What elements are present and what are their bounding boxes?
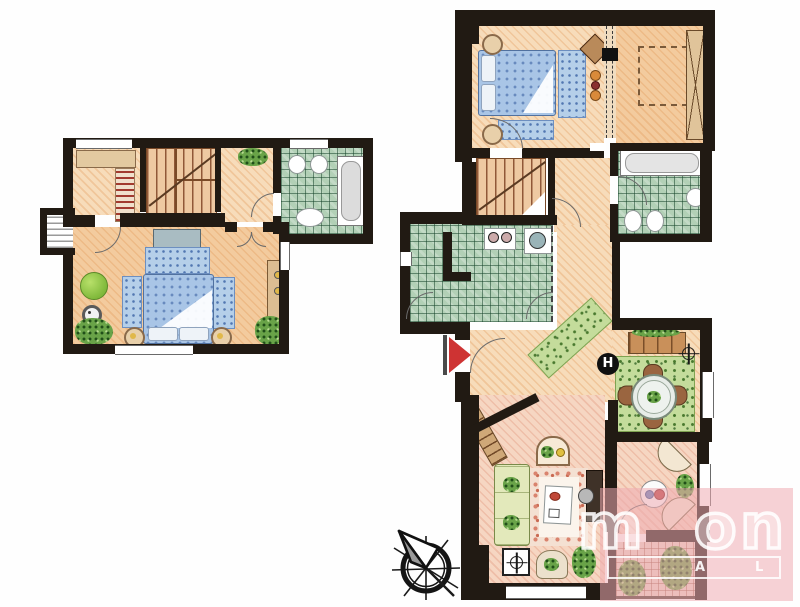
bed1-pillow-right: [179, 327, 209, 341]
bathroom2-toilet: [624, 210, 642, 232]
wall: [610, 151, 618, 176]
bedroom1-rug-top: [145, 247, 210, 274]
bathroom1-toilet: [288, 155, 306, 174]
landing-door-gap: [590, 143, 606, 151]
wall: [612, 318, 712, 330]
sofa-cushion-plant: [503, 515, 520, 530]
sofa-cushion-plant: [503, 477, 520, 492]
stool-dot: [88, 311, 91, 314]
wall: [400, 212, 472, 224]
watermark-letter: n: [740, 490, 784, 563]
wall: [263, 222, 279, 232]
bed1-fold: [160, 290, 212, 328]
wall: [273, 148, 281, 193]
bathtub-basin: [341, 161, 361, 221]
wall: [279, 234, 373, 244]
table-centerpiece: [647, 391, 661, 403]
wall: [63, 248, 73, 354]
wall: [612, 432, 709, 442]
watermark-letter: m: [578, 490, 643, 563]
sliding-door-handle: [602, 48, 618, 61]
dressing-dashed-zone: [638, 46, 688, 106]
wall: [700, 143, 712, 242]
main-staircase: [476, 158, 546, 217]
watermark-bar-letter: A: [695, 560, 705, 575]
wall: [455, 26, 472, 162]
h-marker-icon: H: [597, 353, 619, 375]
niche-plant: [541, 446, 554, 458]
bedroom2-rug-right: [558, 50, 586, 118]
wall: [443, 272, 471, 281]
kitchen-stove: [484, 228, 516, 250]
bed2-pillow-bottom: [481, 84, 496, 111]
stove-burner: [488, 232, 499, 243]
stool-center: [130, 333, 136, 339]
bedroom1-double-bed: [143, 274, 214, 344]
bedroom1-side-window: [280, 242, 290, 270]
niche-vase: [556, 448, 565, 457]
wall: [612, 242, 620, 318]
bathroom2-bathtub: [620, 149, 702, 176]
watermark-bar: A L: [607, 556, 781, 579]
stool-center: [217, 333, 223, 339]
wall: [63, 215, 95, 227]
bathtub-basin: [625, 153, 699, 173]
living-window: [506, 586, 586, 599]
bedroom1-plant-left: [75, 318, 113, 345]
bedroom2-double-bed: [478, 50, 556, 116]
wall: [703, 26, 715, 146]
bathroom1-bidet: [310, 155, 328, 174]
wall: [472, 148, 490, 158]
socket-cross: [510, 556, 523, 569]
bathroom1-window: [290, 139, 328, 149]
bed2-fold: [523, 65, 553, 113]
floor-plan-canvas: H: [0, 0, 800, 607]
upper-staircase: [146, 148, 217, 214]
bedroom2-stool-dot: [590, 70, 601, 81]
bathroom2-bidet: [646, 210, 664, 232]
entrance-arrow-icon: [443, 335, 473, 375]
floor-socket-icon: [502, 548, 530, 576]
bed1-pillow-left: [148, 327, 178, 341]
stove-burner: [501, 232, 512, 243]
bathroom1-sink: [296, 208, 324, 227]
closet-window: [76, 139, 132, 149]
sliding-track: [606, 26, 607, 138]
watermark-letter: o: [694, 490, 737, 563]
bedroom2-stool-dot: [590, 90, 601, 101]
bed2-pillow-top: [481, 55, 496, 82]
wall: [608, 400, 618, 432]
living-armchair: [536, 550, 568, 579]
bedroom1-window: [115, 345, 193, 355]
bedroom1-swivel-chair: [80, 272, 108, 300]
living-sofa: [494, 464, 530, 546]
wall: [63, 138, 73, 215]
wall: [610, 204, 618, 235]
wall: [462, 215, 557, 225]
bathroom1-bathtub: [337, 156, 365, 226]
bedroom2-side-table-top: [482, 34, 503, 55]
wall: [215, 148, 221, 212]
kitchen-window: [400, 252, 412, 266]
sink-basin: [529, 232, 546, 249]
wall: [610, 234, 712, 242]
wall: [120, 213, 225, 227]
hall-foliage: [238, 148, 268, 166]
niche-wall: [40, 208, 47, 255]
wall: [140, 148, 146, 212]
wall: [225, 222, 237, 232]
closet-shelf: [76, 150, 136, 168]
kitchen-sink: [524, 228, 552, 254]
wall: [455, 10, 715, 26]
wall: [363, 138, 373, 244]
stair-landing: [521, 192, 545, 216]
coffee-table: [543, 485, 573, 524]
watermark-bar-letter: L: [755, 560, 763, 575]
sliding-track: [612, 26, 613, 138]
table-magazine: [548, 509, 559, 519]
dining-table: [631, 374, 677, 420]
dining-window: [702, 372, 714, 418]
compass-rose-icon: [390, 518, 460, 602]
arrow-triangle: [449, 337, 471, 373]
wall: [400, 212, 410, 252]
stair-winder-line: [175, 149, 177, 213]
bedroom1-runner-left: [122, 276, 142, 328]
living-arched-niche: [536, 436, 570, 466]
armchair-cushion: [544, 558, 559, 571]
bedroom1-runner-right: [213, 277, 235, 329]
bedroom2-stool-dot: [591, 81, 600, 90]
ceiling-light-icon: [682, 347, 695, 360]
table-bowl: [549, 492, 560, 502]
arrow-bar: [443, 335, 447, 375]
